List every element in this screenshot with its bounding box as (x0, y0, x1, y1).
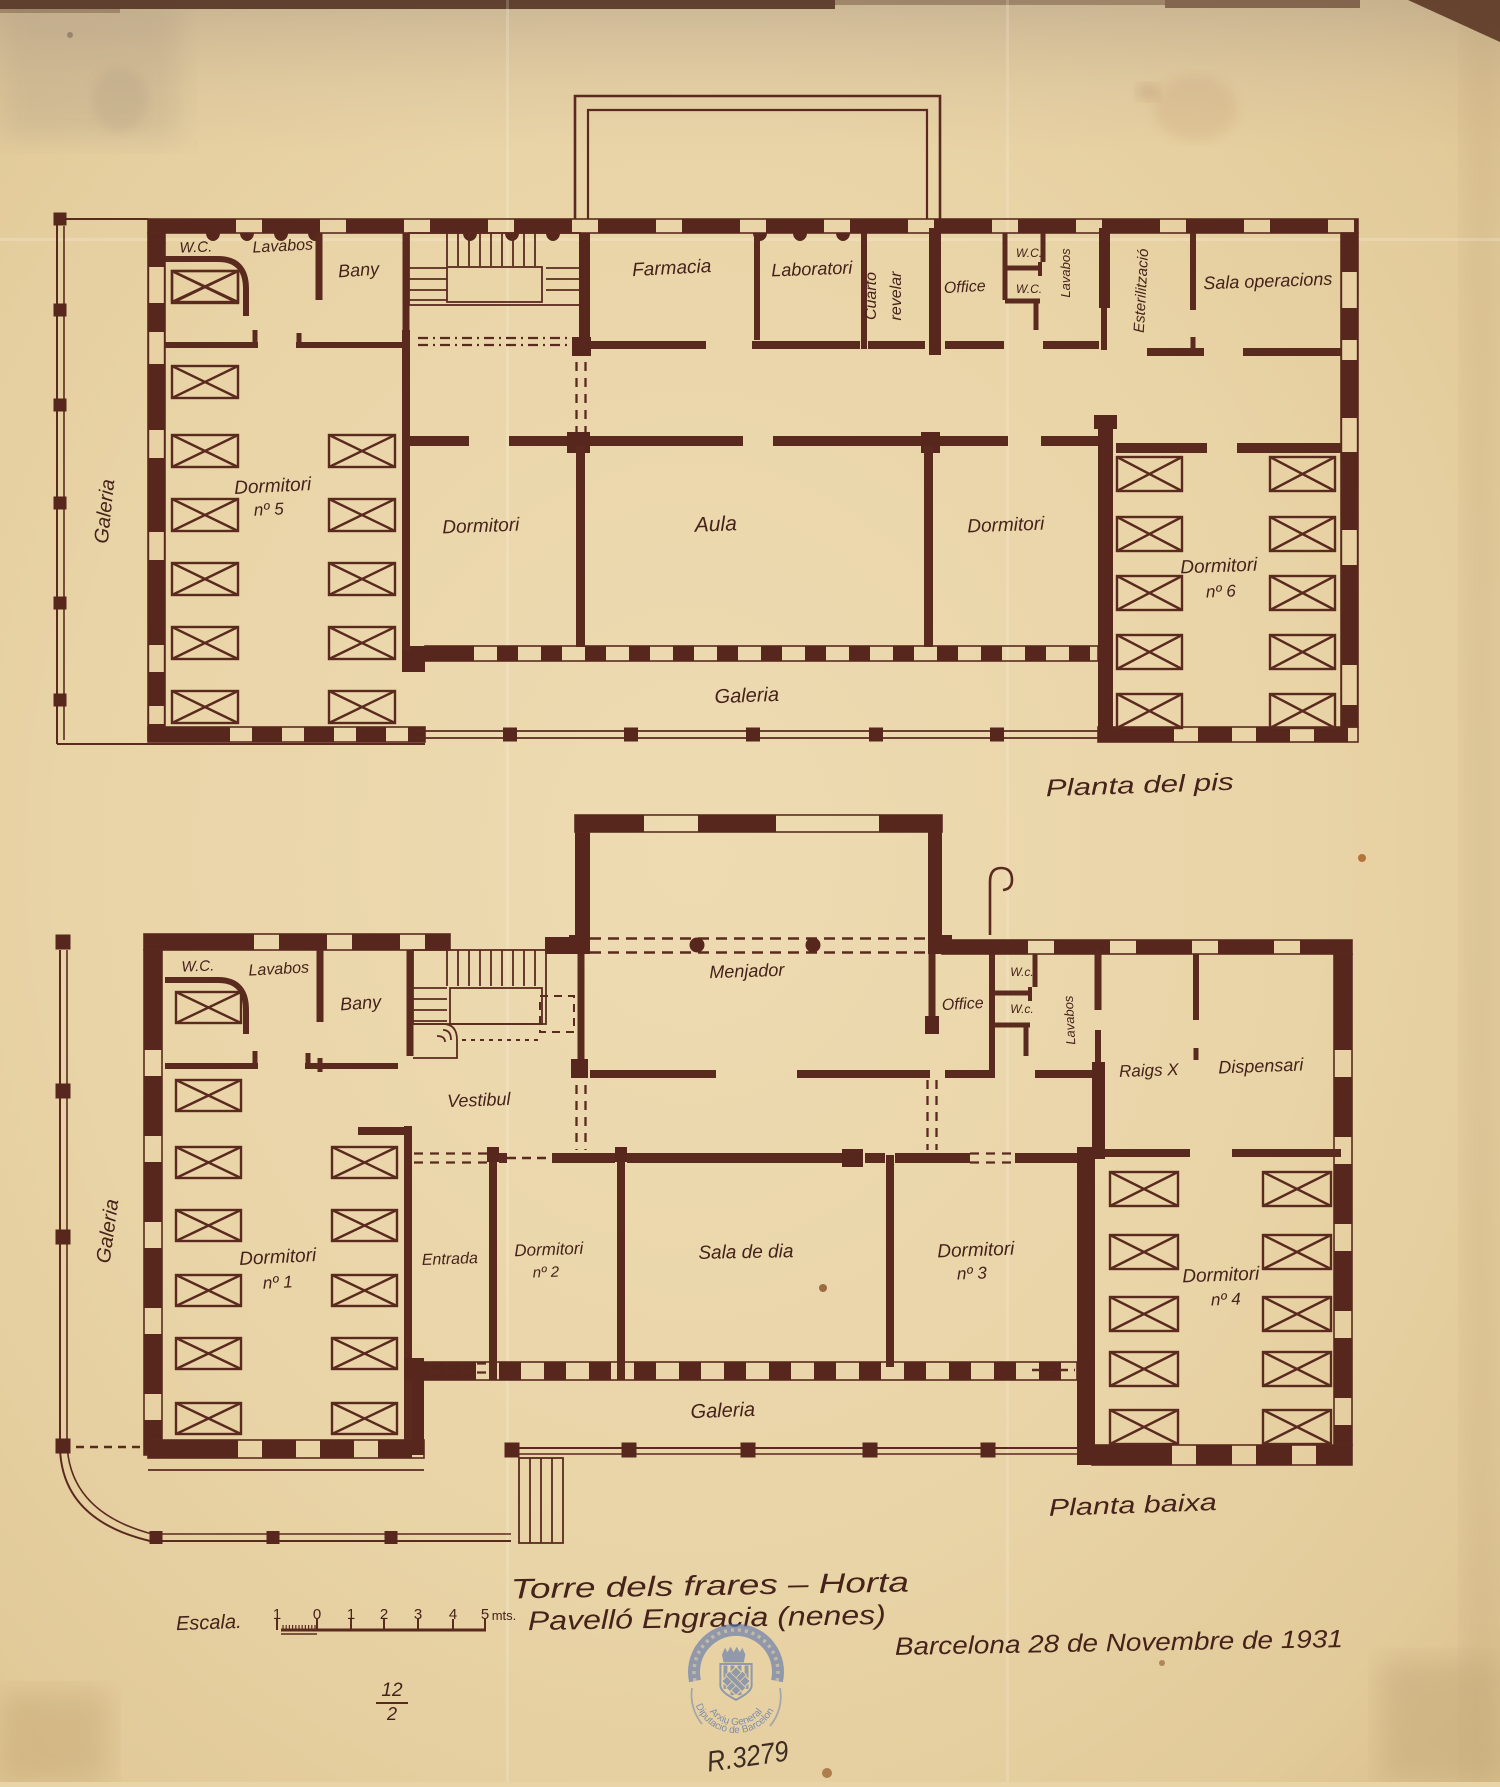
svg-text:Lavabos: Lavabos (252, 236, 313, 256)
svg-text:Bany: Bany (337, 259, 380, 282)
svg-text:1: 1 (273, 1606, 281, 1623)
svg-text:Vestibul: Vestibul (447, 1089, 512, 1111)
svg-text:Office: Office (941, 995, 984, 1014)
svg-text:Dormitori: Dormitori (937, 1239, 1016, 1263)
svg-text:Galeria: Galeria (690, 1399, 755, 1423)
svg-text:Escala.: Escala. (176, 1611, 242, 1635)
svg-text:mts.: mts. (492, 1608, 517, 1623)
svg-text:Farmacia: Farmacia (632, 256, 712, 281)
svg-text:W.C.: W.C. (181, 957, 214, 975)
svg-text:nº 3: nº 3 (957, 1263, 988, 1283)
svg-text:4: 4 (449, 1606, 457, 1623)
svg-text:Galeria: Galeria (714, 684, 779, 708)
svg-text:Cuarto: Cuarto (863, 272, 880, 320)
svg-text:Dormitori: Dormitori (514, 1239, 585, 1260)
svg-text:Dormitori: Dormitori (239, 1245, 318, 1270)
svg-text:nº 4: nº 4 (1211, 1289, 1241, 1309)
svg-text:W.C.: W.C. (1016, 246, 1042, 260)
svg-text:Sala de dia: Sala de dia (698, 1241, 793, 1264)
svg-text:Entrada: Entrada (422, 1250, 479, 1269)
svg-text:Dispensari: Dispensari (1218, 1054, 1305, 1077)
svg-text:W.c.: W.c. (1010, 1002, 1034, 1016)
svg-text:2: 2 (380, 1606, 388, 1623)
svg-text:nº 1: nº 1 (262, 1272, 293, 1293)
svg-text:Office: Office (943, 278, 986, 297)
svg-text:Dormitori: Dormitori (234, 474, 313, 499)
svg-text:nº 5: nº 5 (253, 499, 284, 520)
svg-text:Pavelló Engracia (nenes): Pavelló Engracia (nenes) (528, 1600, 886, 1636)
svg-text:Menjador: Menjador (709, 960, 786, 983)
svg-text:nº 6: nº 6 (1206, 581, 1237, 601)
svg-text:Dormitori: Dormitori (1182, 1264, 1261, 1288)
svg-text:Raigs X: Raigs X (1119, 1060, 1180, 1081)
svg-text:revelar: revelar (888, 271, 905, 321)
svg-text:Dormitori: Dormitori (442, 515, 521, 539)
svg-text:W.C.: W.C. (1016, 282, 1042, 296)
svg-text:1: 1 (347, 1606, 355, 1623)
svg-text:Laboratori: Laboratori (771, 258, 854, 281)
svg-text:Lavabos: Lavabos (1061, 995, 1079, 1045)
svg-text:W.C.: W.C. (179, 238, 212, 256)
svg-text:3: 3 (414, 1606, 422, 1623)
svg-text:nº 2: nº 2 (532, 1264, 560, 1282)
svg-text:Lavabos: Lavabos (248, 959, 309, 979)
svg-text:Lavabos: Lavabos (1058, 248, 1073, 298)
svg-text:12: 12 (381, 1680, 403, 1701)
svg-text:0: 0 (313, 1606, 321, 1623)
svg-text:Dormitori: Dormitori (967, 514, 1046, 538)
svg-text:Aula: Aula (692, 512, 737, 537)
svg-text:2: 2 (386, 1704, 397, 1724)
svg-text:Bany: Bany (339, 992, 382, 1015)
svg-text:Dormitori: Dormitori (1180, 555, 1259, 579)
svg-text:W.c.: W.c. (1010, 965, 1034, 979)
svg-text:5: 5 (481, 1606, 489, 1623)
